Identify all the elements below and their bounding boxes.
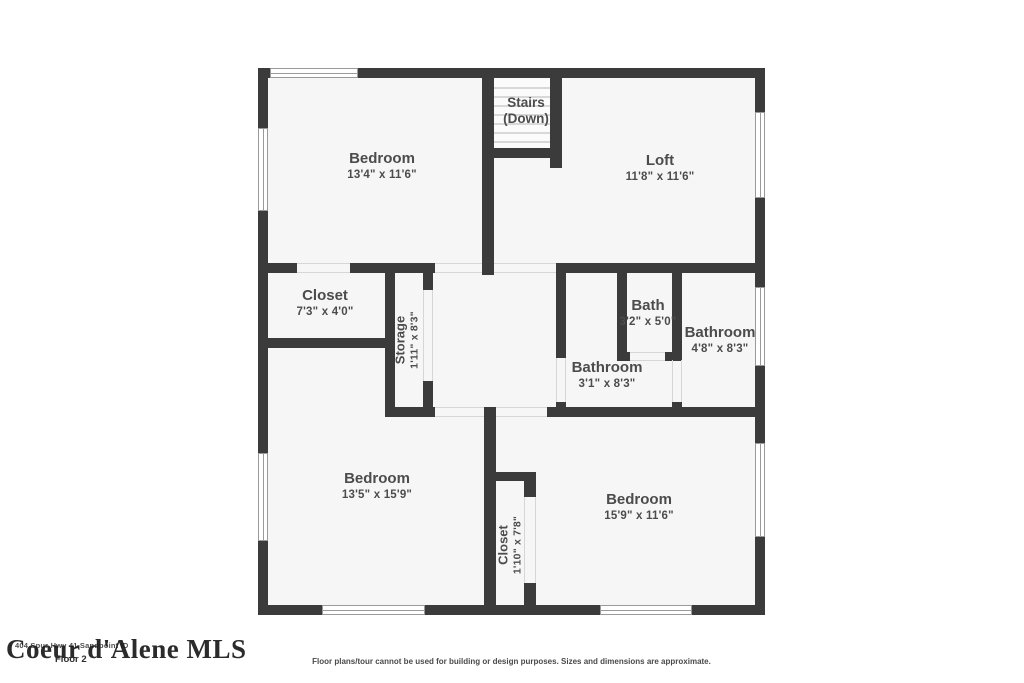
room-name: Bathroom (685, 324, 756, 342)
room-label-stairs: Stairs (Down) (503, 95, 549, 127)
room-dims: 3'2" x 5'0" (620, 315, 677, 329)
door-bedroom1 (435, 263, 482, 273)
wall-closet2-right-bottom (524, 583, 536, 615)
wall-closet2-right-top (524, 472, 536, 497)
room-dims: 3'1" x 8'3" (572, 377, 643, 391)
wall-hall-bottom-right (547, 407, 765, 417)
door-storage (423, 290, 433, 381)
room-dims: 11'8" x 11'6" (626, 170, 695, 184)
room-label-bedroom-1: Bedroom 13'4" x 11'6" (347, 150, 417, 182)
window-bedroom3-bottom (600, 605, 692, 615)
room-name: Bedroom (342, 470, 412, 488)
window-bathroom-right (755, 287, 765, 366)
stairs-line2: (Down) (503, 111, 549, 127)
room-name: Storage (393, 311, 409, 369)
room-dims: 15'9" x 11'6" (604, 509, 674, 523)
floor-number-label: Floor 2 (55, 654, 87, 665)
room-name: Closet (297, 287, 354, 305)
room-label-bedroom-2: Bedroom 13'5" x 15'9" (342, 470, 412, 502)
wall-bathroom-mid-left-top (556, 263, 566, 358)
wall-loft-bottom (556, 263, 765, 273)
room-name: Bedroom (604, 491, 674, 509)
wall-bedroom2-right (484, 407, 496, 615)
room-dims: 13'5" x 15'9" (342, 488, 412, 502)
room-label-bathroom-mid: Bathroom 3'1" x 8'3" (572, 359, 643, 391)
wall-closet1-bottom (258, 338, 395, 348)
room-dims: 7'3" x 4'0" (297, 305, 354, 319)
room-dims: 13'4" x 11'6" (347, 168, 417, 182)
window-bedroom1-left (258, 128, 268, 211)
room-dims: 4'8" x 8'3" (685, 342, 756, 356)
window-loft-right (755, 112, 765, 198)
door-closet1 (297, 263, 350, 273)
window-bedroom2-bottom (322, 605, 425, 615)
room-name: Bathroom (572, 359, 643, 377)
room-dims: 1'11" x 8'3" (409, 311, 422, 369)
wall-bathroom-divider-bottom (672, 402, 682, 417)
disclaimer-text: Floor plans/tour cannot be used for buil… (258, 657, 765, 666)
room-label-loft: Loft 11'8" x 11'6" (626, 152, 695, 184)
room-label-storage: Storage 1'11" x 8'3" (393, 311, 422, 369)
passage-hall-loft (494, 263, 556, 273)
room-label-bedroom-3: Bedroom 15'9" x 11'6" (604, 491, 674, 523)
window-bedroom3-right (755, 443, 765, 537)
stair-tread (494, 141, 550, 143)
door-bedroom2 (435, 407, 484, 417)
stair-tread (494, 87, 550, 89)
wall-bedroom1-bottom-a (258, 263, 297, 273)
door-bathroom-mid (556, 358, 566, 402)
wall-storage-right-top (423, 263, 433, 290)
room-dims: 1'10" x 7'8" (512, 516, 525, 574)
door-closet2 (524, 497, 536, 583)
stair-tread (494, 132, 550, 134)
door-bathroom-right (672, 360, 682, 402)
wall-bedroom1-right (482, 68, 494, 275)
door-bedroom3 (496, 407, 547, 417)
listing-address-text: 404 Spur Hwy 41 Sandpoint ID (15, 641, 129, 650)
room-label-bath: Bath 3'2" x 5'0" (620, 297, 677, 329)
room-name: Bedroom (347, 150, 417, 168)
wall-bathroom-mid-left-bottom (556, 402, 566, 417)
room-name: Loft (626, 152, 695, 170)
room-name: Closet (496, 516, 512, 574)
floor-plan-page: Bedroom 13'4" x 11'6" Stairs (Down) Loft… (0, 0, 1024, 683)
window-bedroom2-left (258, 453, 268, 541)
wall-stairs-bottom (482, 148, 562, 158)
room-name: Bath (620, 297, 677, 315)
window-bedroom1-top (270, 68, 358, 78)
wall-storage-bottom (385, 407, 435, 417)
stairs-line1: Stairs (503, 95, 549, 111)
room-label-closet-1: Closet 7'3" x 4'0" (297, 287, 354, 319)
room-label-closet-2: Closet 1'10" x 7'8" (496, 516, 525, 574)
room-label-bathroom-right: Bathroom 4'8" x 8'3" (685, 324, 756, 356)
